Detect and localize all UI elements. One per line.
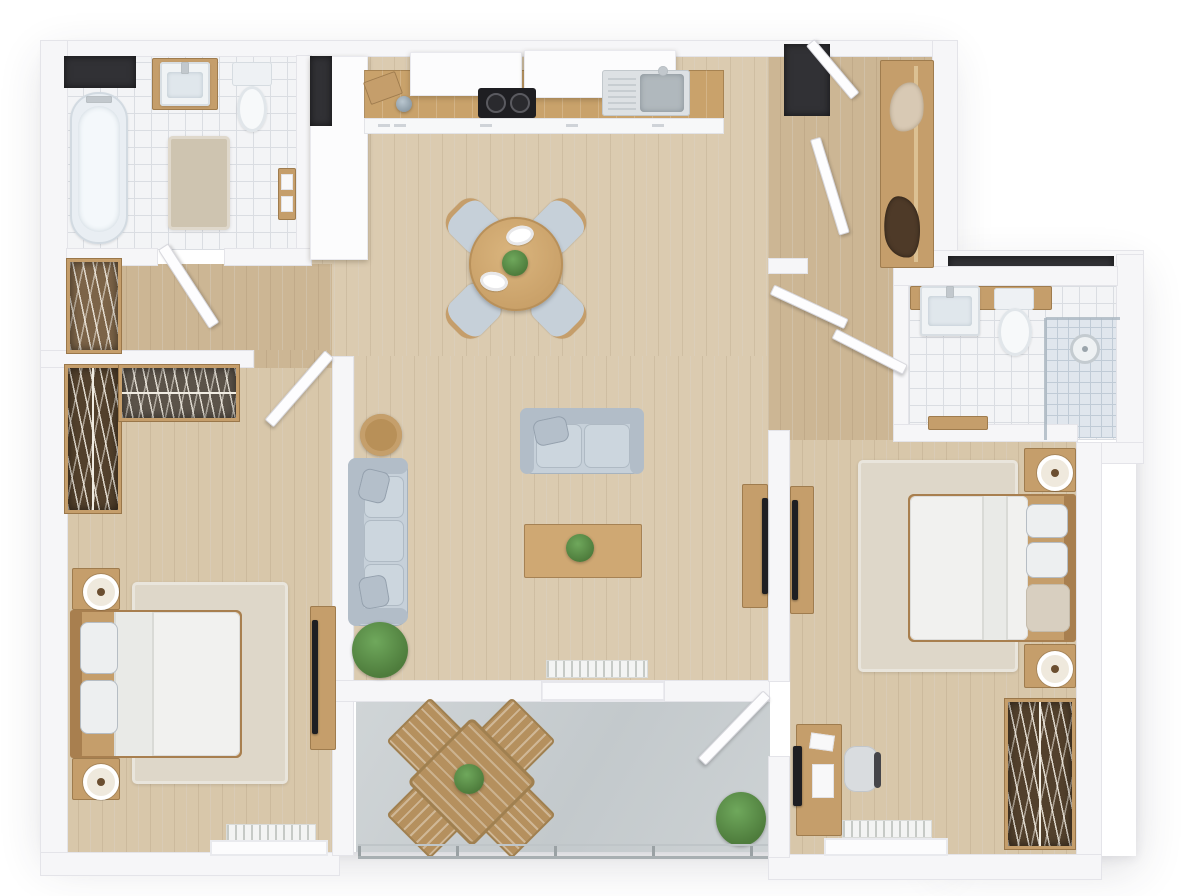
bedroom2-radiator: [842, 820, 932, 838]
sofa-2-cushion-2: [584, 424, 630, 468]
shower-head: [1070, 334, 1100, 364]
wall-corridor2-bath2: [893, 266, 909, 440]
bath1-faucet: [181, 62, 189, 74]
closet-vertical-rail: [92, 368, 94, 510]
closet-horizontal-rail: [122, 392, 236, 394]
shower-glass-top: [1046, 317, 1120, 320]
bathtub-faucet: [86, 96, 112, 103]
kitchen-sink-drainboard: [608, 76, 636, 110]
sofa-2-arm-left: [520, 408, 534, 474]
bathtub-inner: [78, 106, 120, 232]
wall-bath2-right-ext: [1116, 254, 1144, 464]
toilet1-tank: [232, 62, 272, 86]
living-radiator: [546, 660, 648, 678]
toilet2-bowl: [998, 308, 1032, 356]
wall-bathroom2-top: [893, 266, 1118, 286]
bath2-basin: [928, 296, 972, 326]
bed1-duvet-fold: [114, 612, 154, 756]
bed1-pillow-2: [80, 680, 118, 734]
sofa-3-cushion-2: [364, 520, 404, 562]
lamp-1a: [83, 574, 119, 610]
wall-bedroom2-bottom: [768, 854, 1102, 880]
burner-left: [486, 93, 506, 113]
bath2-faucet: [946, 286, 954, 298]
sofa-3-pillow-2: [357, 574, 390, 610]
desk-paper-1: [809, 732, 835, 751]
bath2-bench: [928, 416, 988, 430]
main-floor-lower: [354, 356, 772, 682]
window-recess-bath1: [64, 56, 136, 88]
kitchen-sink-basin: [640, 74, 684, 112]
towel-1: [281, 174, 293, 190]
hall-wardrobe: [70, 262, 118, 350]
lamp-1b: [83, 764, 119, 800]
office-chair-seat: [844, 746, 878, 792]
bed2-duvet-fold: [982, 496, 1008, 640]
shower-glass-side: [1044, 318, 1047, 440]
balcony-railing: [358, 844, 768, 859]
bed2-mattress: [910, 496, 1028, 640]
bed1-pillow-1: [80, 622, 118, 674]
bath1-rug: [168, 136, 230, 230]
sofa-2-arm-right: [630, 408, 644, 474]
kitchen-faucet: [658, 66, 668, 76]
desk-monitor: [793, 746, 802, 806]
bath1-basin: [167, 72, 203, 98]
sliding-door-threshold: [542, 680, 664, 702]
side-table: [360, 414, 402, 456]
toilet1-bowl: [237, 86, 267, 132]
balcony-shrub: [716, 792, 766, 846]
wall-bathroom1-bottom-b: [224, 248, 312, 266]
desk-paper-2: [812, 764, 834, 798]
bedroom2-tv: [792, 500, 798, 600]
wall-entry-right: [932, 40, 958, 274]
burner-right: [510, 93, 530, 113]
kitchen-niche: [310, 56, 332, 126]
kitchen-decor-plant: [396, 96, 412, 112]
lamp-2b: [1037, 651, 1073, 687]
bedroom1-tv: [312, 620, 318, 734]
bedroom1-window-sill: [210, 840, 328, 856]
towel-2: [281, 196, 293, 212]
base-cabinets: [364, 118, 724, 134]
bed2-pillow-2: [1026, 542, 1068, 578]
living-tv: [762, 498, 768, 594]
bedroom2-wardrobe-rail: [1039, 702, 1041, 846]
coffee-table-plant: [566, 534, 594, 562]
scene: [0, 0, 1184, 896]
bed2-throw: [1026, 584, 1070, 632]
bed2-pillow-1: [1026, 504, 1068, 538]
wall-bedroom2-right: [1076, 442, 1102, 880]
toilet2-tank: [994, 288, 1034, 310]
dining-table-plant: [502, 250, 528, 276]
lamp-2a: [1037, 455, 1073, 491]
wall-corridor2-stub: [768, 258, 808, 274]
bedroom2-window-sill: [824, 838, 948, 856]
wall-bedroom2-balcony-lower: [768, 756, 790, 858]
balcony-table-plant: [454, 764, 484, 794]
office-chair-back: [874, 752, 881, 788]
living-floor-plant: [352, 622, 408, 678]
wall-bedroom2-living-upper: [768, 430, 790, 682]
